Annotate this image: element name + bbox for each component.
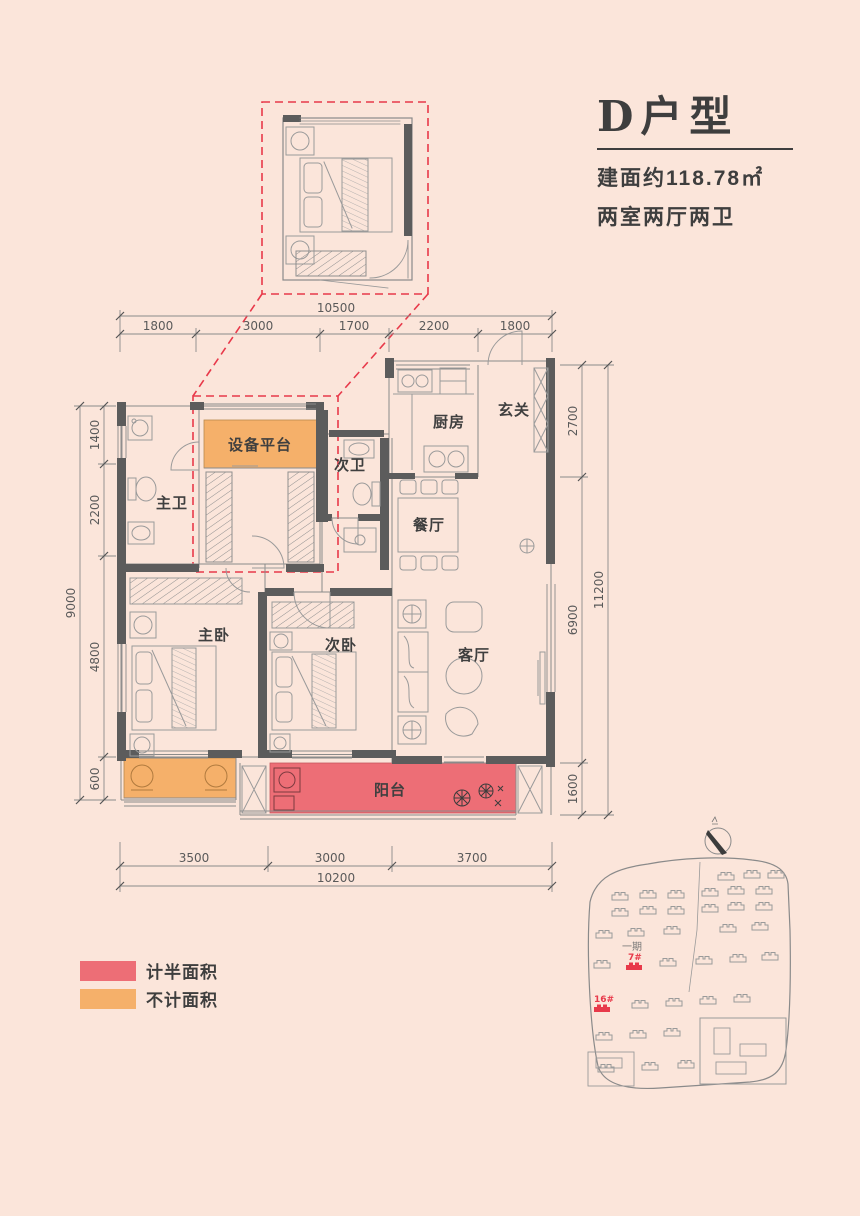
label-second-bedroom: 次卧 (325, 636, 357, 654)
dim-left-seg: 4800 (88, 642, 102, 673)
dim-bottom-total: 10200 (317, 871, 355, 885)
label-master-bathroom: 主卫 (156, 494, 188, 512)
dim-right-seg: 2700 (566, 406, 580, 437)
label-equipment-platform: 设备平台 (228, 436, 292, 454)
floor-drain-icon (520, 539, 534, 553)
north-compass-icon (705, 817, 731, 855)
floor-plan-page: D户型 建面约118.78㎡ 两室两厅两卫 (0, 0, 860, 1216)
bay-window-fill (124, 758, 236, 798)
dim-top-seg: 2200 (419, 319, 450, 333)
living-room-furniture (398, 600, 545, 744)
label-foyer: 玄关 (498, 401, 530, 419)
dim-left-seg: 1400 (88, 420, 102, 451)
legend-half-area-label: 计半面积 (146, 962, 218, 983)
inset-wall (404, 124, 412, 236)
legend-excluded-area-label: 不计面积 (146, 990, 218, 1011)
second-bedroom-furniture (270, 602, 356, 752)
wardrobe-icon (206, 472, 232, 562)
site-buildings (594, 871, 784, 1073)
label-master-bedroom: 主卧 (198, 626, 230, 644)
dim-left-seg: 2200 (88, 495, 102, 526)
floor-plan-svg: 设备平台 次卫 主卫 厨房 玄关 餐厅 主卧 次卧 客厅 阳台 (0, 0, 860, 1216)
legend-half-area-swatch (80, 961, 136, 981)
site-plan: 一期 7# 16# (588, 817, 790, 1088)
legend-excluded-area-swatch (80, 989, 136, 1009)
inset-wardrobe-icon (296, 251, 366, 276)
label-balcony: 阳台 (374, 781, 406, 799)
dim-right-total: 11200 (592, 571, 606, 609)
legend: 计半面积 不计面积 (80, 961, 218, 1011)
inset-bed-icon (300, 158, 392, 232)
master-bath-fixtures (128, 416, 156, 544)
site-building-16-label: 16# (594, 995, 614, 1005)
building-7-highlight (626, 963, 642, 971)
dim-top-seg: 3000 (243, 319, 274, 333)
wardrobe-icon (288, 472, 314, 562)
dim-left-total: 9000 (64, 588, 78, 619)
dim-top-seg: 1800 (143, 319, 174, 333)
dim-bottom-seg: 3500 (179, 851, 210, 865)
dim-top-seg: 1700 (339, 319, 370, 333)
label-second-bathroom: 次卫 (334, 456, 366, 474)
dim-bottom-seg: 3700 (457, 851, 488, 865)
master-bedroom-furniture (130, 578, 242, 756)
inset-detail-room (283, 115, 412, 288)
site-building-7-label: 7# (628, 953, 642, 963)
dim-top-total: 10500 (317, 301, 355, 315)
dim-left-seg: 600 (88, 768, 102, 791)
dim-bottom-seg: 3000 (315, 851, 346, 865)
dim-top-seg: 1800 (500, 319, 531, 333)
building-16-highlight (594, 1005, 610, 1013)
dim-right-seg: 1600 (566, 774, 580, 805)
dim-right-seg: 6900 (566, 605, 580, 636)
inset-door-arc (370, 240, 408, 278)
foyer-closet-icon (534, 368, 548, 452)
label-kitchen: 厨房 (433, 413, 465, 431)
label-living-room: 客厅 (457, 646, 490, 664)
site-phase-label: 一期 (622, 941, 642, 953)
label-dining-room: 餐厅 (413, 516, 445, 534)
